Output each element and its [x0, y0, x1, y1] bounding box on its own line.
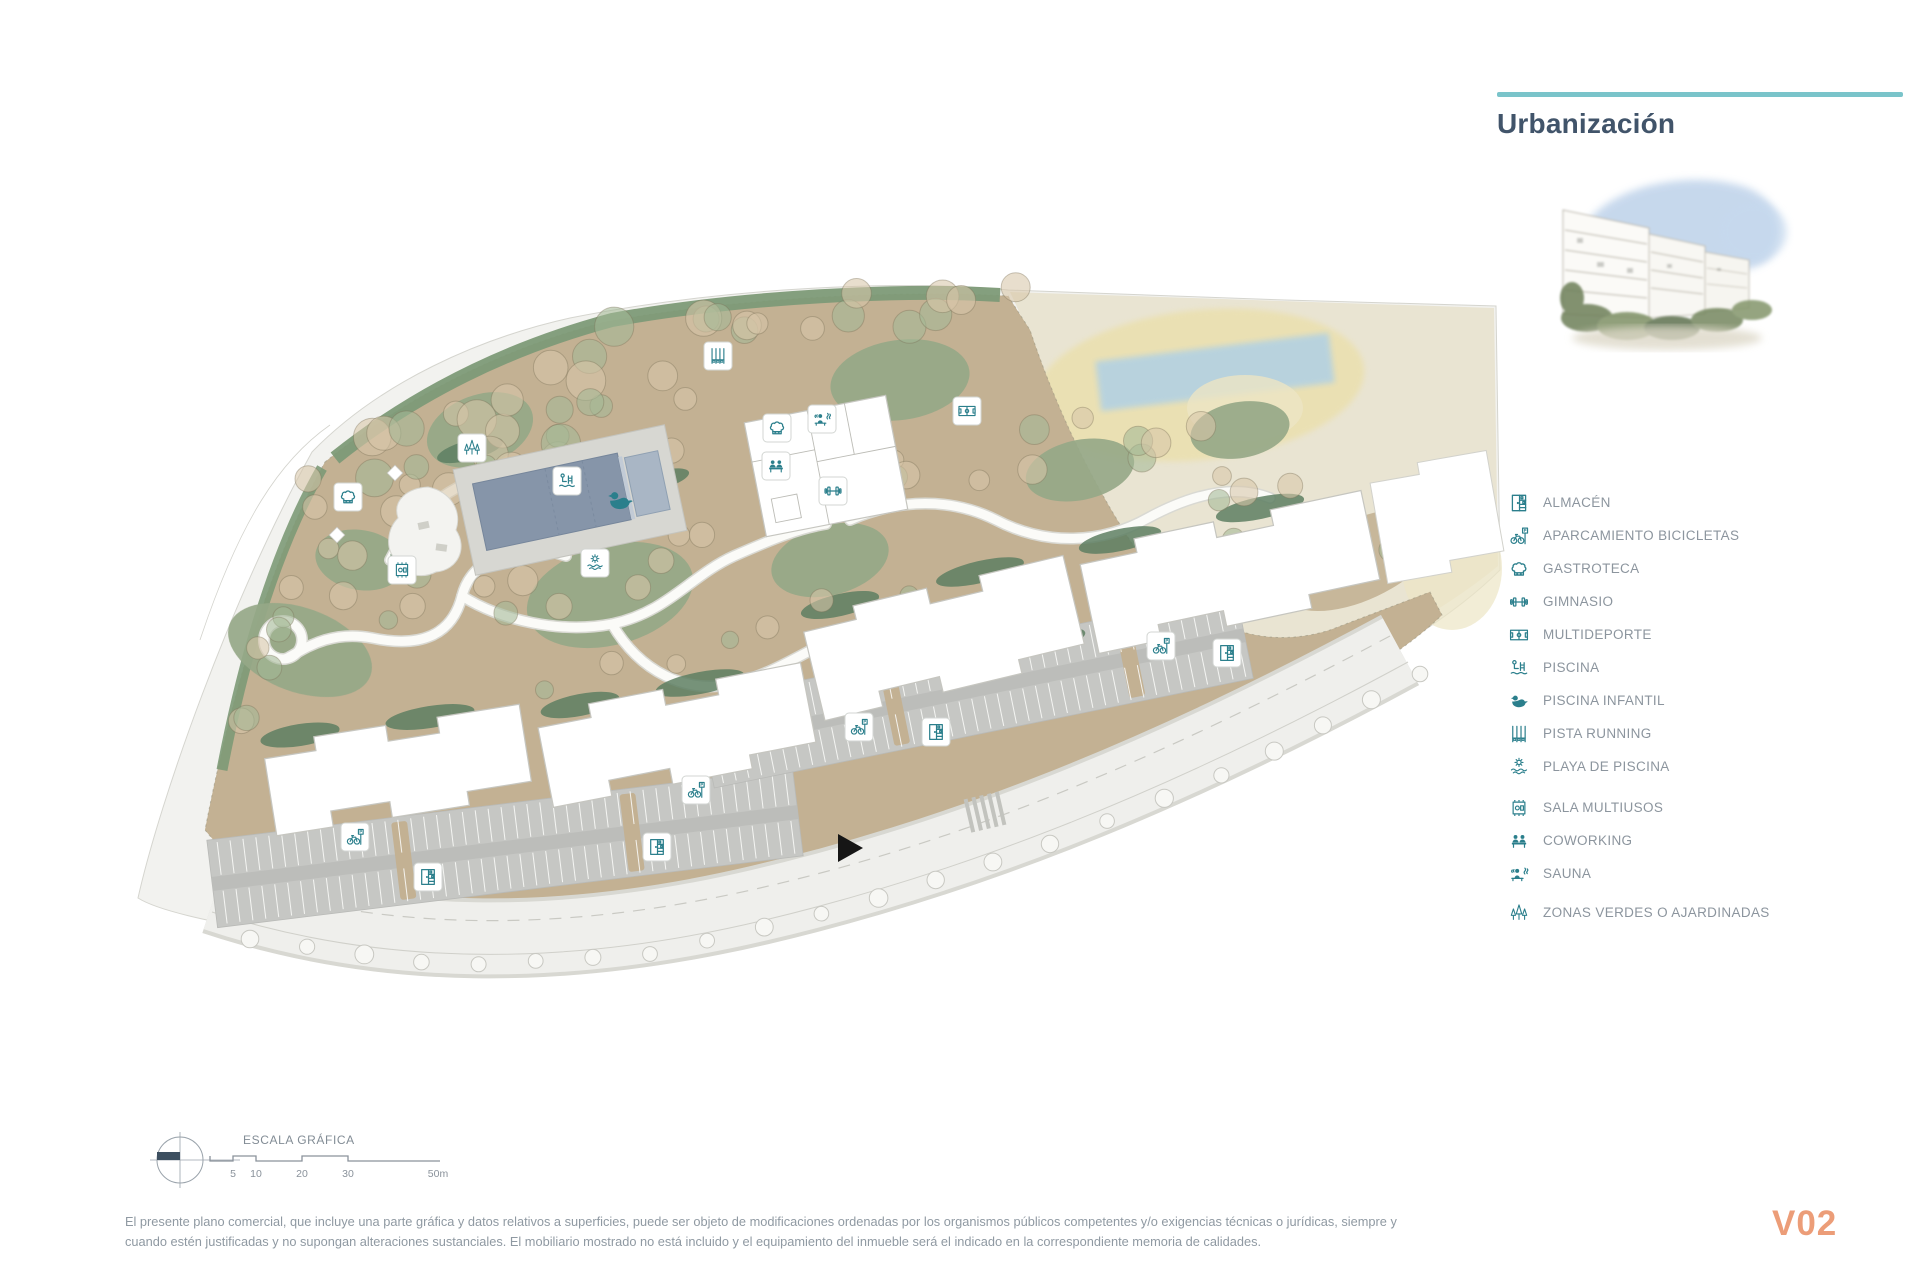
map-marker-multideporte [953, 397, 981, 425]
bicicletas-icon [1506, 525, 1532, 547]
legend-label: GASTROTECA [1543, 561, 1640, 576]
legend-label: MULTIDEPORTE [1543, 627, 1652, 642]
zonas-verdes-icon [1506, 902, 1532, 924]
map-marker-bicicletas [682, 776, 710, 804]
legend-item-bicicletas: APARCAMIENTO BICICLETAS [1506, 519, 1770, 552]
multideporte-icon [1506, 624, 1532, 646]
scale-tick-label: 5 [230, 1168, 236, 1180]
legend-label: PISTA RUNNING [1543, 726, 1652, 741]
map-marker-piscina [553, 467, 581, 495]
amenities-legend: ALMACÉNAPARCAMIENTO BICICLETASGASTROTECA… [1506, 486, 1770, 929]
map-marker-almacen [414, 863, 442, 891]
scale-bar-title: ESCALA GRÁFICA [243, 1133, 355, 1147]
sauna-icon [1506, 863, 1532, 885]
scale-bar: 510203050m [210, 1156, 448, 1180]
map-marker-sauna [808, 405, 836, 433]
disclaimer-line-1: El presente plano comercial, que incluye… [125, 1212, 1525, 1232]
page-title: Urbanización [1497, 108, 1675, 140]
map-marker-zonas-verdes [458, 434, 486, 462]
legend-label: COWORKING [1543, 833, 1632, 848]
gastroteca-icon [1506, 558, 1532, 580]
piscina-infantil-icon [1506, 690, 1532, 712]
legend-item-zonas-verdes: ZONAS VERDES O AJARDINADAS [1506, 896, 1770, 929]
legend-label: APARCAMIENTO BICICLETAS [1543, 528, 1739, 543]
legend-label: SAUNA [1543, 866, 1591, 881]
disclaimer-text: El presente plano comercial, que incluye… [125, 1212, 1525, 1252]
legend-item-sauna: SAUNA [1506, 857, 1770, 890]
legend-item-piscina: PISCINA [1506, 651, 1770, 684]
legend-label: PISCINA [1543, 660, 1599, 675]
coworking-icon [1506, 830, 1532, 852]
map-marker-pista-running [704, 342, 732, 370]
disclaimer-line-2: cuando estén justificadas y no supongan … [125, 1232, 1525, 1252]
map-marker-gastroteca [334, 483, 362, 511]
legend-label: ALMACÉN [1543, 495, 1611, 510]
accent-rule [1497, 92, 1903, 97]
legend-item-pista-running: PISTA RUNNING [1506, 717, 1770, 750]
map-marker-almacen [922, 718, 950, 746]
brochure-page: { "header": { "title": "Urbanización" },… [0, 0, 1920, 1280]
plan-version-badge: V02 [1772, 1204, 1837, 1244]
map-marker-bicicletas [845, 713, 873, 741]
map-marker-gastroteca [763, 414, 791, 442]
map-marker-almacen [1213, 639, 1241, 667]
compass [150, 1132, 240, 1188]
scale-tick-label: 20 [296, 1168, 308, 1180]
map-marker-playa-piscina [581, 549, 609, 577]
legend-label: PLAYA DE PISCINA [1543, 759, 1670, 774]
map-marker-almacen [643, 833, 671, 861]
legend-item-almacen: ALMACÉN [1506, 486, 1770, 519]
legend-item-piscina-infantil: PISCINA INFANTIL [1506, 684, 1770, 717]
map-marker-coworking [762, 452, 790, 480]
building-render-illustration [1557, 168, 1795, 356]
legend-label: PISCINA INFANTIL [1543, 693, 1665, 708]
legend-label: GIMNASIO [1543, 594, 1613, 609]
legend-label: SALA MULTIUSOS [1543, 800, 1663, 815]
scale-tick-label: 50m [428, 1168, 449, 1180]
map-marker-bicicletas [1147, 632, 1175, 660]
piscina-icon [1506, 657, 1532, 679]
legend-item-coworking: COWORKING [1506, 824, 1770, 857]
map-marker-gimnasio [819, 477, 847, 505]
legend-item-gimnasio: GIMNASIO [1506, 585, 1770, 618]
map-marker-bicicletas [341, 823, 369, 851]
almacen-icon [1506, 492, 1532, 514]
playa-piscina-icon [1506, 756, 1532, 778]
scale-tick-label: 30 [342, 1168, 354, 1180]
legend-item-gastroteca: GASTROTECA [1506, 552, 1770, 585]
pista-running-icon [1506, 723, 1532, 745]
legend-label: ZONAS VERDES O AJARDINADAS [1543, 905, 1770, 920]
legend-item-multideporte: MULTIDEPORTE [1506, 618, 1770, 651]
legend-item-sala-multiusos: SALA MULTIUSOS [1506, 791, 1770, 824]
legend-item-playa-piscina: PLAYA DE PISCINA [1506, 750, 1770, 783]
scale-tick-label: 10 [250, 1168, 262, 1180]
gimnasio-icon [1506, 591, 1532, 613]
map-marker-sala-multiusos [388, 556, 416, 584]
sala-multiusos-icon [1506, 797, 1532, 819]
